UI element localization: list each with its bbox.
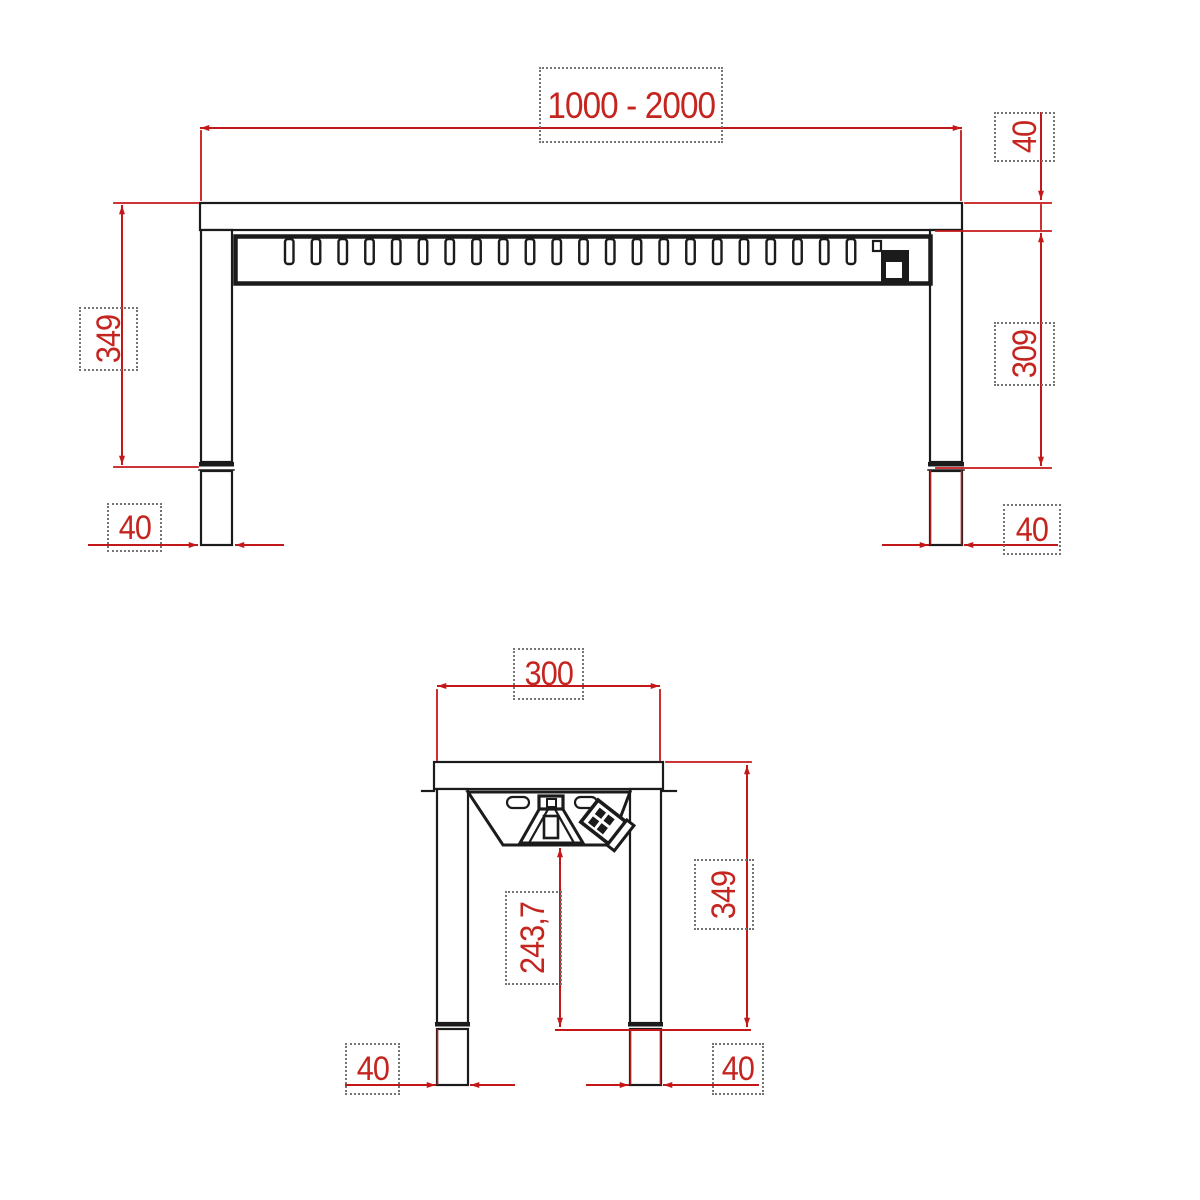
housing-vent-oval-left [507, 797, 529, 808]
front-left-foot [201, 471, 232, 545]
front-right-leg-joint [928, 462, 964, 467]
label-width-text: 1000 - 2000 [547, 87, 715, 124]
technical-drawing-canvas: 1000 - 2000 40 349 309 40 40 300 349 243… [0, 0, 1200, 1200]
front-left-leg-joint [199, 462, 234, 467]
label-top-thickness-text: 40 [1007, 121, 1041, 153]
label-underside-clearance: 243,7 [505, 891, 562, 985]
vent-slot [847, 239, 856, 264]
vent-slot [446, 239, 455, 264]
indicator-dot [873, 241, 881, 251]
vent-slot [713, 239, 722, 264]
side-tabletop [434, 762, 663, 789]
side-right-foot [630, 1029, 661, 1085]
label-front-overall-height: 349 [79, 307, 138, 371]
vent-slot [285, 239, 294, 264]
front-left-leg [201, 230, 232, 462]
side-left-leg [437, 789, 468, 1023]
side-left-leg-joint [435, 1022, 470, 1027]
front-dimension-lines [89, 113, 1057, 545]
vent-slot [499, 239, 508, 264]
vent-slot [740, 239, 749, 264]
label-side-overall-height: 349 [694, 859, 754, 930]
label-front-overall-height-text: 349 [91, 315, 125, 363]
label-front-right-leg-width: 40 [1003, 504, 1061, 555]
front-right-foot [930, 471, 962, 545]
label-under-top-height-text: 309 [1007, 330, 1041, 378]
vent-slot [472, 239, 481, 264]
vent-slot [392, 239, 401, 264]
vent-slot [419, 239, 428, 264]
label-side-left-leg-width-text: 40 [356, 1052, 388, 1086]
vent-slot [553, 239, 562, 264]
bracket-center-slot [544, 816, 558, 838]
label-front-left-leg-width: 40 [107, 503, 162, 552]
side-left-foot [437, 1029, 468, 1085]
drawing-svg [0, 0, 1200, 1200]
label-underside-clearance-text: 243,7 [517, 902, 551, 974]
vent-slot [767, 239, 776, 264]
label-side-left-leg-width: 40 [345, 1043, 400, 1095]
side-right-leg-joint [628, 1022, 663, 1027]
label-depth-text: 300 [524, 657, 572, 691]
label-under-top-height: 309 [994, 322, 1055, 386]
vent-slot [526, 239, 535, 264]
label-top-thickness: 40 [994, 112, 1055, 162]
front-view-drawing [89, 113, 1057, 545]
vent-slot [686, 239, 695, 264]
vent-slot [312, 239, 321, 264]
switch-box-inner [886, 262, 902, 278]
vent-slot [660, 239, 669, 264]
label-width: 1000 - 2000 [539, 67, 723, 143]
front-right-leg [930, 230, 962, 462]
side-right-leg [630, 789, 661, 1023]
vent-slot [820, 239, 829, 264]
label-side-right-leg-width-text: 40 [722, 1052, 754, 1086]
vent-slot [365, 239, 374, 264]
label-side-right-leg-width: 40 [712, 1043, 764, 1095]
front-tabletop [200, 203, 962, 230]
bracket-cap-notch [547, 799, 556, 807]
label-side-overall-height-text: 349 [707, 870, 741, 918]
label-front-left-leg-width-text: 40 [118, 511, 150, 545]
vent-slot [339, 239, 348, 264]
label-depth: 300 [513, 648, 584, 700]
vent-slot [793, 239, 802, 264]
vent-slot [633, 239, 642, 264]
label-front-right-leg-width-text: 40 [1016, 513, 1048, 547]
vent-slot [579, 239, 588, 264]
vent-slot [606, 239, 615, 264]
